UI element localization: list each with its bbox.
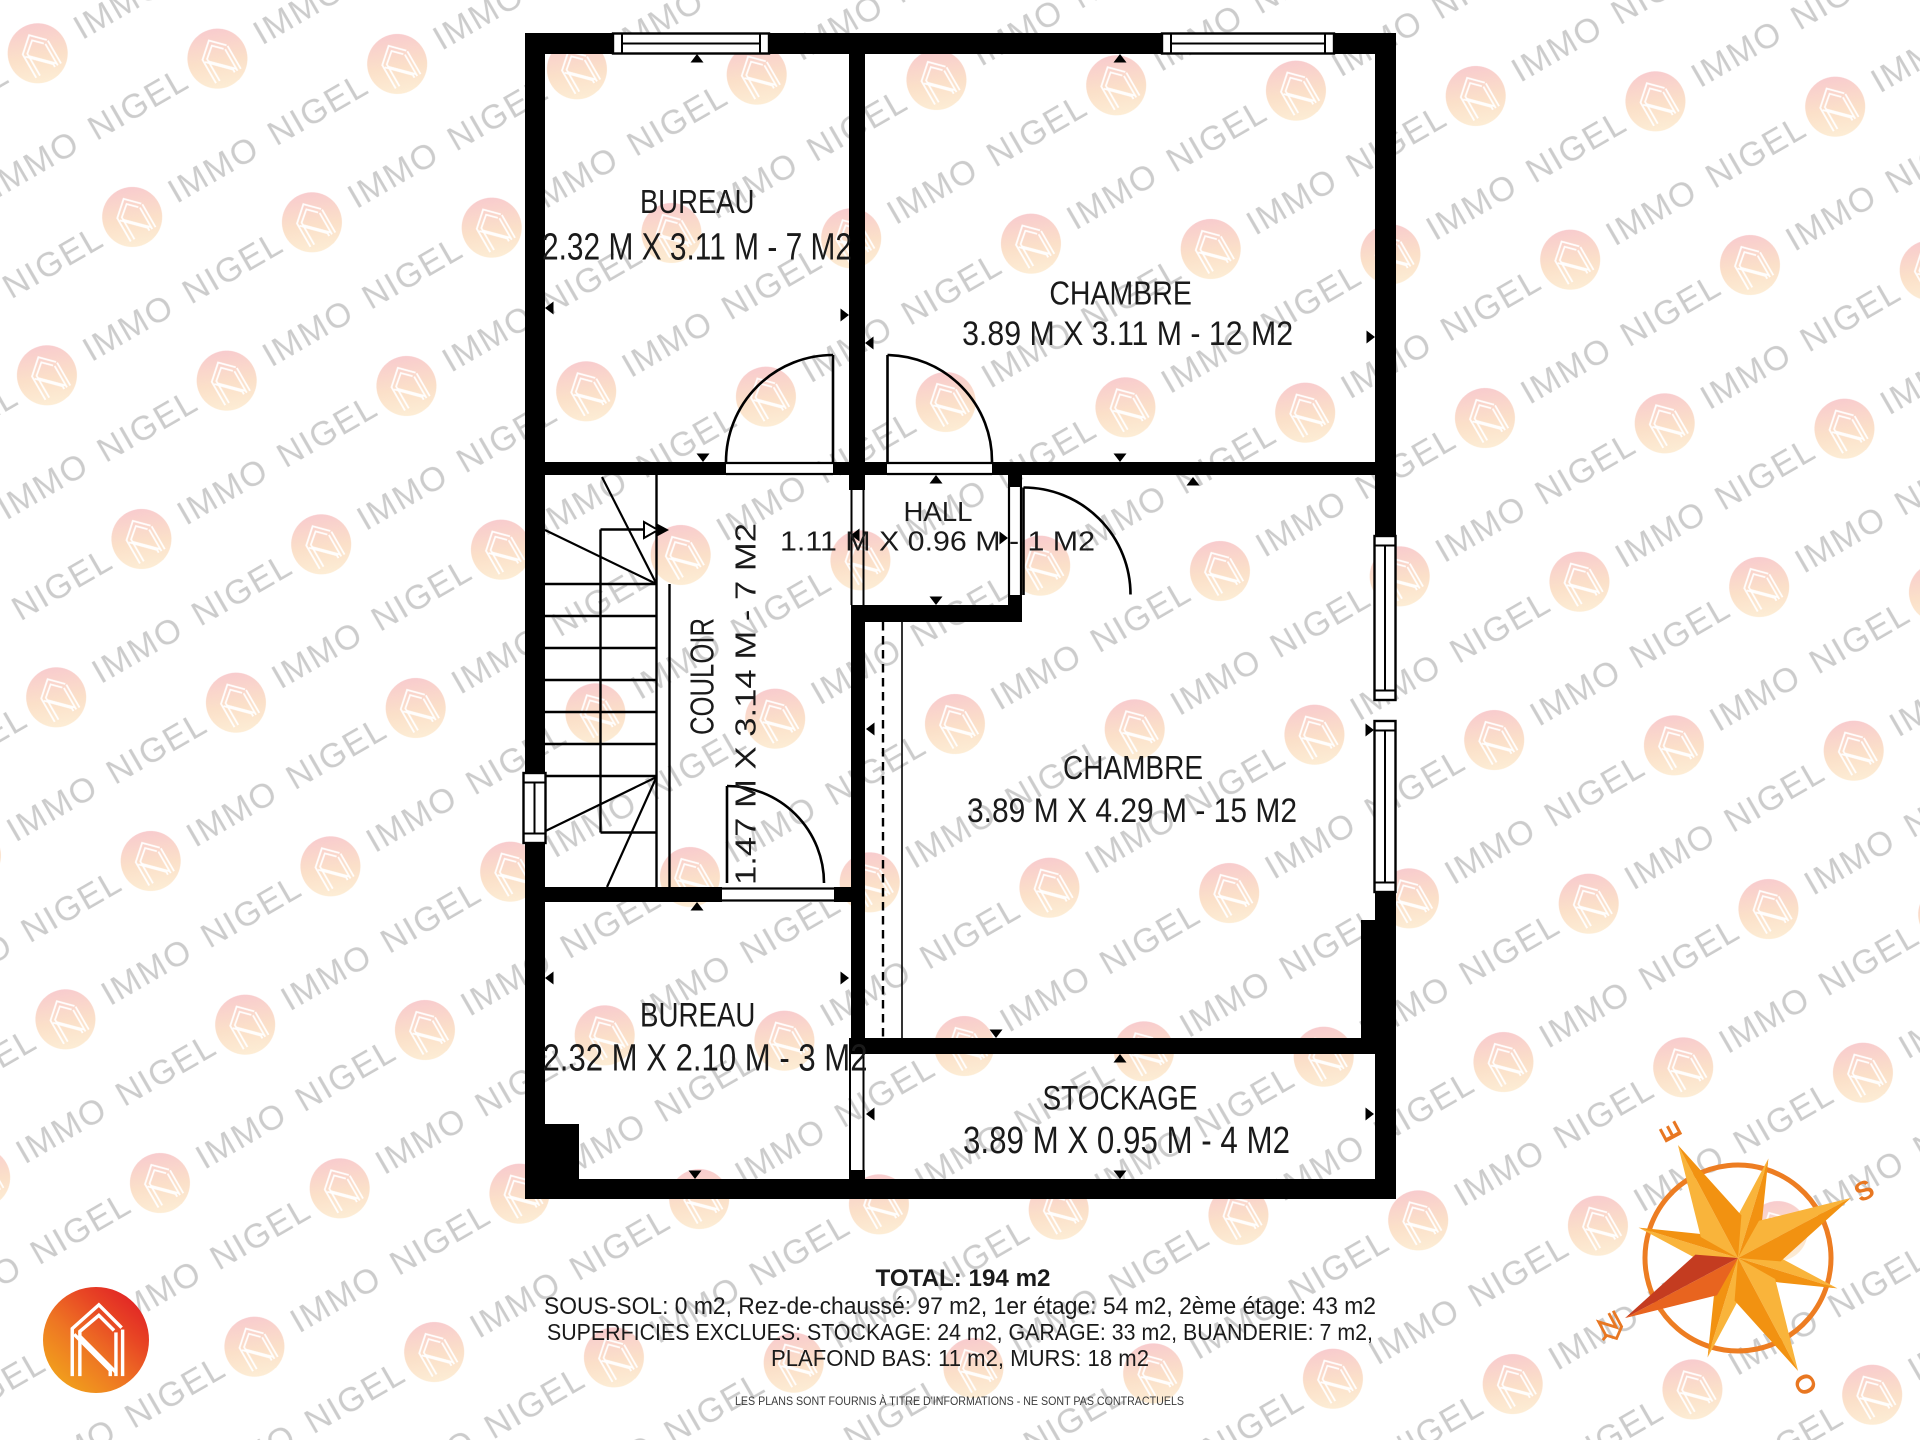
- svg-text:STOCKAGE: STOCKAGE: [1043, 1080, 1198, 1118]
- svg-text:PLAFOND BAS: 11 m2, MURS: 18 m: PLAFOND BAS: 11 m2, MURS: 18 m2: [771, 1345, 1149, 1371]
- svg-text:1.47 M X 3.14 M - 7 M2: 1.47 M X 3.14 M - 7 M2: [731, 523, 763, 885]
- svg-text:3.89 M X 0.95 M - 4 M2: 3.89 M X 0.95 M - 4 M2: [963, 1120, 1290, 1162]
- svg-text:BUREAU: BUREAU: [640, 997, 755, 1035]
- svg-text:3.89 M X 3.11 M - 12 M2: 3.89 M X 3.11 M - 12 M2: [962, 315, 1293, 353]
- svg-text:3.89 M X 4.29 M - 15 M2: 3.89 M X 4.29 M - 15 M2: [967, 792, 1297, 830]
- svg-text:2.32 M X 2.10 M - 3 M2: 2.32 M X 2.10 M - 3 M2: [543, 1038, 868, 1080]
- svg-text:CHAMBRE: CHAMBRE: [1049, 275, 1192, 312]
- svg-text:1.11 M X 0.96 M - 1 M2: 1.11 M X 0.96 M - 1 M2: [780, 526, 1095, 557]
- svg-text:SOUS-SOL: 0 m2, Rez-de-chaussé: SOUS-SOL: 0 m2, Rez-de-chaussé: 97 m2, 1…: [544, 1293, 1376, 1320]
- svg-text:LES PLANS SONT FOURNIS À TITRE: LES PLANS SONT FOURNIS À TITRE D'INFORMA…: [735, 1393, 1184, 1408]
- svg-text:HALL: HALL: [904, 496, 973, 527]
- svg-text:CHAMBRE: CHAMBRE: [1063, 749, 1203, 786]
- svg-text:COULOIR: COULOIR: [684, 618, 721, 735]
- svg-text:SUPERFICIES EXCLUES: STOCKAGE:: SUPERFICIES EXCLUES: STOCKAGE: 24 m2, GA…: [547, 1319, 1373, 1345]
- svg-text:BUREAU: BUREAU: [640, 183, 754, 220]
- svg-text:TOTAL: 194 m2: TOTAL: 194 m2: [876, 1265, 1051, 1292]
- svg-text:2.32 M X 3.11 M - 7 M2: 2.32 M X 3.11 M - 7 M2: [542, 227, 852, 269]
